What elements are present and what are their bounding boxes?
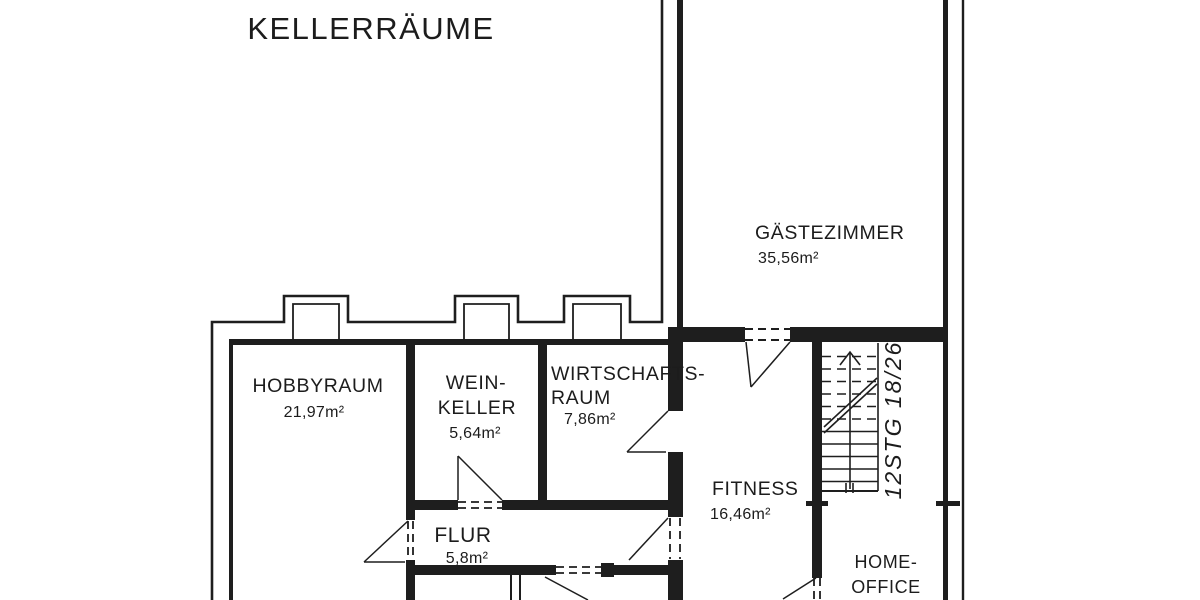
bottom-partition-wall [511, 575, 520, 600]
light-well-window-icon [573, 304, 621, 342]
room-area-wirtschaftsraum: 7,86m² [564, 411, 616, 428]
wall-left-inner [229, 339, 233, 600]
room-label-gaestezimmer: GÄSTEZIMMER [755, 222, 905, 244]
room-area-flur: 5,8m² [446, 550, 489, 567]
room-label-weinkeller: KELLER [438, 397, 516, 419]
wall-room-band-top [229, 339, 683, 345]
door-wirtschaftsraum [627, 411, 668, 452]
light-well-window-icon [464, 304, 509, 342]
wall-right-inner [943, 0, 948, 600]
room-label-flur: FLUR [434, 524, 491, 547]
room-label-wirtschaftsraum: RAUM [551, 387, 611, 409]
wall-gaestezimmer-bottom [790, 327, 943, 342]
wall-flur-top [406, 500, 458, 510]
wall-tick [936, 501, 960, 506]
room-area-weinkeller: 5,64m² [449, 425, 501, 442]
room-label-homeoffice: HOME- [855, 552, 918, 572]
door-flur-west [364, 521, 413, 562]
wall-tick [806, 501, 828, 506]
stair-dimension-label: 12STG 18/26 [880, 341, 906, 500]
room-area-hobbyraum: 21,97m² [284, 404, 345, 421]
door-flur-fitness [629, 518, 680, 560]
room-label-hobbyraum: HOBBYRAUM [252, 375, 383, 397]
page-title: KELLERRÄUME [247, 11, 494, 46]
door-weinkeller [458, 456, 502, 508]
room-label-weinkeller: WEIN- [446, 372, 506, 394]
floor-plan: KELLERRÄUME HOBBYRAUM 21,97m² WEIN- KELL… [0, 0, 1200, 600]
door-stair-hall [783, 578, 820, 600]
interior-walls [229, 0, 960, 600]
wall-gaestezimmer-left [677, 0, 683, 345]
wall-stair-hall-left [812, 342, 822, 578]
light-well-window-icon [293, 304, 339, 342]
room-area-fitness: 16,46m² [710, 506, 771, 523]
wall-flur-bottom [601, 565, 683, 575]
stair-walking-line [840, 352, 860, 493]
wall-hobbyraum-weinkeller [406, 339, 415, 520]
staircase [822, 343, 878, 493]
room-label-fitness: FITNESS [712, 478, 799, 500]
floor-plan-drawing: KELLERRÄUME HOBBYRAUM 21,97m² WEIN- KELL… [0, 0, 1200, 600]
room-label-homeoffice: OFFICE [851, 577, 921, 597]
room-area-gaestezimmer: 35,56m² [758, 250, 819, 267]
wall-flur-top [502, 500, 683, 510]
door-gaestezimmer-fitness [745, 329, 790, 387]
wall-weinkeller-wirtschaftsraum [538, 339, 547, 502]
room-label-wirtschaftsraum: WIRTSCHAFTS- [551, 363, 705, 385]
wall-gaestezimmer-bottom [683, 327, 745, 342]
